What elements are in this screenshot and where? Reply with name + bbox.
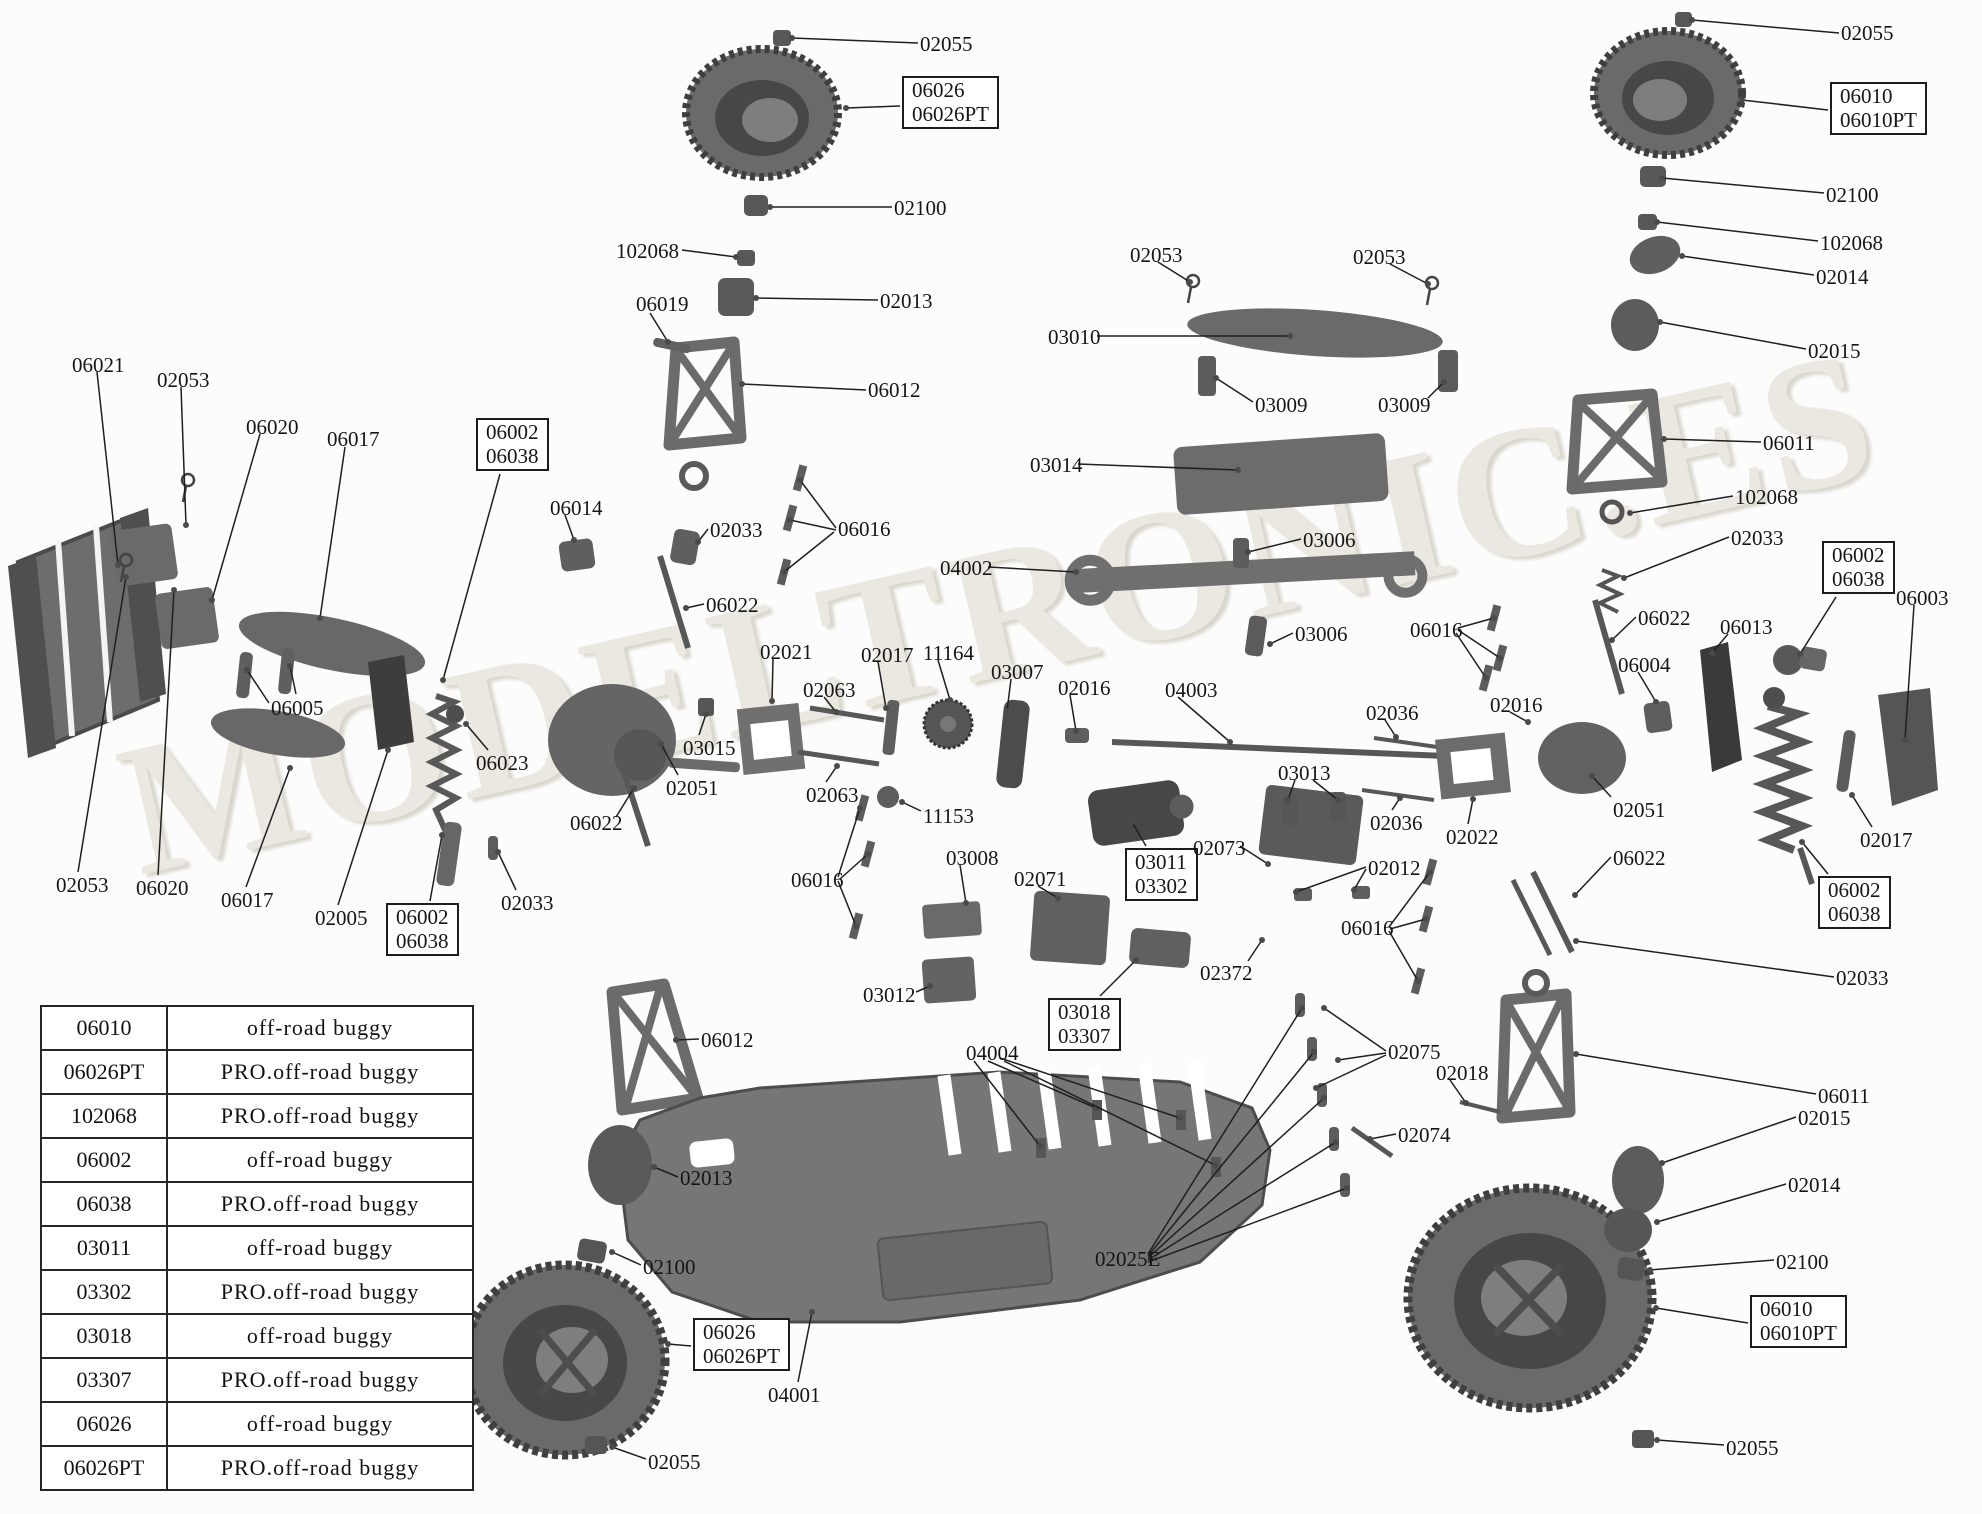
leader-tip	[947, 697, 953, 703]
leader-tip	[1654, 1437, 1660, 1443]
electronics	[922, 777, 1370, 1004]
leader-line	[1656, 1308, 1748, 1323]
leader-tip	[1463, 1100, 1469, 1106]
table-row: 03011off-road buggy	[41, 1226, 473, 1270]
leader-tip	[1647, 1267, 1653, 1273]
leader-line	[612, 1447, 646, 1459]
leader-tip	[495, 849, 501, 855]
leader-line	[1657, 222, 1818, 241]
leader-tip	[1313, 1085, 1319, 1091]
leader-tip	[833, 709, 839, 715]
leader-tip	[1653, 1305, 1659, 1311]
leader-tip	[1679, 253, 1685, 259]
leader-tip	[1573, 938, 1579, 944]
shock-tower-front-right	[1572, 394, 1662, 489]
leader-tip	[1573, 1051, 1579, 1057]
leader-line	[1248, 539, 1301, 552]
part-desc-cell: off-road buggy	[167, 1226, 473, 1270]
wheel-front-left	[686, 49, 838, 177]
leader-tip	[665, 339, 671, 345]
leader-tip	[1321, 1095, 1327, 1101]
table-row: 06038PRO.off-road buggy	[41, 1182, 473, 1226]
leader-tip	[834, 763, 840, 769]
leader-tip	[1659, 175, 1665, 181]
leader-line	[1852, 795, 1872, 827]
leader-line	[1575, 857, 1611, 895]
leader-line	[1624, 537, 1729, 578]
leader-line	[466, 724, 488, 750]
leader-tip	[1654, 1219, 1660, 1225]
leader-line	[1370, 1134, 1396, 1139]
leader-tip	[1267, 641, 1273, 647]
leader-line	[1178, 697, 1230, 742]
leader-tip	[899, 799, 905, 805]
leader-tip	[571, 537, 577, 543]
leader-line	[1650, 1260, 1774, 1270]
leader-tip	[865, 851, 871, 857]
drivetrain-right	[1362, 12, 1938, 994]
leader-tip	[857, 805, 863, 811]
leader-line	[1662, 178, 1824, 193]
parts-table-grid: 06010off-road buggy06026PTPRO.off-road b…	[40, 1005, 474, 1491]
leader-tip	[631, 785, 637, 791]
part-number-cell: 03307	[41, 1358, 167, 1402]
leader-line	[1576, 1054, 1816, 1094]
leader-tip	[1572, 892, 1578, 898]
leader-tip	[1799, 839, 1805, 845]
leader-tip	[853, 923, 859, 929]
leader-tip	[1659, 1160, 1665, 1166]
leader-tip	[1245, 549, 1251, 555]
leader-tip	[1073, 569, 1079, 575]
exploded-parts-diagram: MODELTRONIC.ES	[0, 0, 1982, 1514]
leader-line	[742, 384, 866, 390]
leader-tip	[1397, 795, 1403, 801]
leader-line	[498, 852, 516, 890]
leader-line	[1742, 100, 1828, 110]
leader-line	[1456, 633, 1486, 678]
leader-tip	[843, 105, 849, 111]
leader-tip	[927, 983, 933, 989]
leader-line	[1612, 617, 1636, 640]
leader-line	[1682, 256, 1814, 275]
leader-tip	[733, 254, 739, 260]
leader-tip	[439, 832, 445, 838]
leader-line	[650, 313, 668, 342]
leader-tip	[1285, 797, 1291, 803]
part-desc-cell: PRO.off-road buggy	[167, 1270, 473, 1314]
leader-tip	[1037, 1143, 1043, 1149]
leader-tip	[1335, 1057, 1341, 1063]
leader-tip	[1427, 869, 1433, 875]
part-number-cell: 03018	[41, 1314, 167, 1358]
center-assembly	[1069, 301, 1458, 657]
leader-tip	[1177, 1115, 1183, 1121]
table-row: 03018off-road buggy	[41, 1314, 473, 1358]
leader-tip	[1335, 797, 1341, 803]
leader-tip	[703, 711, 709, 717]
leader-tip	[1293, 889, 1299, 895]
leader-line	[212, 434, 260, 600]
leader-tip	[1849, 792, 1855, 798]
leader-line	[676, 1039, 699, 1040]
part-number-cell: 06026PT	[41, 1446, 167, 1490]
leader-tip	[1657, 319, 1663, 325]
part-desc-cell: PRO.off-road buggy	[167, 1094, 473, 1138]
part-desc-cell: PRO.off-road buggy	[167, 1358, 473, 1402]
leader-tip	[1299, 1005, 1305, 1011]
leader-line	[1692, 20, 1839, 33]
leader-line	[1390, 264, 1428, 284]
part-number-cell: 06038	[41, 1182, 167, 1226]
leader-tip	[244, 667, 250, 673]
leader-line	[1450, 1080, 1466, 1103]
leader-line	[1662, 1117, 1796, 1163]
part-desc-cell: PRO.off-road buggy	[167, 1446, 473, 1490]
part-desc-cell: off-road buggy	[167, 1402, 473, 1446]
table-row: 06026PTPRO.off-road buggy	[41, 1050, 473, 1094]
table-row: 06026PTPRO.off-road buggy	[41, 1446, 473, 1490]
leader-tip	[1055, 895, 1061, 901]
leader-line	[792, 38, 918, 43]
leader-tip	[883, 705, 889, 711]
leader-line	[1664, 439, 1761, 442]
leader-line	[902, 802, 921, 811]
leader-tip	[1187, 279, 1193, 285]
leader-line	[320, 447, 345, 618]
shock-tower-rear-left	[612, 984, 698, 1110]
leader-tip	[1213, 375, 1219, 381]
leader-line	[1800, 597, 1836, 654]
leader-line	[1660, 322, 1806, 349]
leader-line	[247, 670, 269, 703]
leader-line	[800, 480, 836, 528]
parts-table: 06010off-road buggy06026PTPRO.off-road b…	[40, 1005, 474, 1491]
leader-tip	[1425, 281, 1431, 287]
leader-line	[1630, 496, 1733, 513]
leader-line	[612, 1252, 641, 1265]
leader-line	[790, 520, 836, 530]
gearbox-front-left	[548, 464, 805, 796]
leader-line	[682, 250, 736, 257]
leader-tip	[1415, 978, 1421, 984]
leader-line	[784, 532, 834, 572]
shock-absorber-left	[432, 696, 464, 887]
leader-tip	[809, 1309, 815, 1315]
leader-tip	[963, 900, 969, 906]
leader-line	[1248, 940, 1262, 961]
leader-line	[838, 881, 856, 926]
leader-tip	[1287, 333, 1293, 339]
leader-tip	[183, 522, 189, 528]
leader-line	[1316, 1055, 1386, 1088]
leader-tip	[1235, 467, 1241, 473]
leader-tip	[658, 741, 664, 747]
leader-tip	[1797, 651, 1803, 657]
leader-line	[181, 387, 186, 525]
leader-line	[838, 808, 860, 877]
leader-tip	[317, 615, 323, 621]
leader-tip	[695, 539, 701, 545]
leader-tip	[665, 1341, 671, 1347]
part-number-cell: 06026PT	[41, 1050, 167, 1094]
leader-tip	[463, 721, 469, 727]
leader-tip	[797, 477, 803, 483]
leader-line	[1510, 712, 1528, 722]
leader-tip	[1344, 1185, 1350, 1191]
leader-tip	[385, 747, 391, 753]
leader-tip	[1739, 97, 1745, 103]
leader-tip	[1133, 957, 1139, 963]
leader-tip	[1491, 615, 1497, 621]
leader-line	[1158, 262, 1190, 282]
part-number-cell: 06002	[41, 1138, 167, 1182]
leader-tip	[767, 204, 773, 210]
leader-line	[878, 662, 886, 708]
leader-line	[1576, 941, 1834, 977]
leader-tip	[1709, 650, 1715, 656]
leader-tip	[115, 562, 121, 568]
leader-tip	[609, 1249, 615, 1255]
leader-line	[668, 1344, 691, 1346]
leader-tip	[1073, 728, 1079, 734]
leader-tip	[1441, 379, 1447, 385]
leader-tip	[1367, 1136, 1373, 1142]
leader-tip	[1470, 796, 1476, 802]
leader-line	[988, 567, 1076, 572]
leader-tip	[1423, 916, 1429, 922]
part-desc-cell: off-road buggy	[167, 1314, 473, 1358]
leader-tip	[1621, 575, 1627, 581]
leader-line	[1385, 720, 1396, 737]
leader-tip	[1004, 708, 1010, 714]
leader-tip	[171, 587, 177, 593]
leader-tip	[739, 381, 745, 387]
leader-tip	[651, 1164, 657, 1170]
leader-tip	[440, 677, 446, 683]
wheel-rear-left	[465, 1265, 665, 1455]
leader-tip	[1259, 937, 1265, 943]
leader-tip	[1589, 773, 1595, 779]
leader-tip	[1311, 1049, 1317, 1055]
leader-line	[443, 474, 500, 680]
leader-tip	[1265, 861, 1271, 867]
leader-tip	[1627, 510, 1633, 516]
leader-line	[1468, 799, 1473, 824]
part-desc-cell: PRO.off-road buggy	[167, 1182, 473, 1226]
chassis-plate	[618, 1060, 1270, 1322]
leader-line	[772, 659, 773, 701]
leader-line	[846, 106, 900, 108]
leader-tip	[1321, 1005, 1327, 1011]
leader-tip	[609, 1444, 615, 1450]
leader-tip	[789, 35, 795, 41]
leader-line	[1270, 633, 1293, 644]
leader-tip	[1689, 17, 1695, 23]
leader-tip	[123, 574, 129, 580]
part-number-cell: 06010	[41, 1006, 167, 1050]
table-row: 06010off-road buggy	[41, 1006, 473, 1050]
leader-tip	[209, 597, 215, 603]
leader-tip	[287, 663, 293, 669]
part-number-cell: 06026	[41, 1402, 167, 1446]
leader-line	[1389, 931, 1418, 981]
leader-tip	[769, 698, 775, 704]
table-row: 102068PRO.off-road buggy	[41, 1094, 473, 1138]
leader-tip	[1525, 719, 1531, 725]
table-row: 06026off-road buggy	[41, 1402, 473, 1446]
leader-tip	[1653, 699, 1659, 705]
leader-line	[756, 298, 878, 300]
leader-tip	[1654, 219, 1660, 225]
part-number-cell: 102068	[41, 1094, 167, 1138]
leader-tip	[781, 569, 787, 575]
leader-tip	[683, 605, 689, 611]
leader-tip	[787, 517, 793, 523]
leader-tip	[1609, 637, 1615, 643]
leader-line	[1100, 960, 1136, 996]
leader-tip	[1129, 819, 1135, 825]
leader-line	[699, 714, 706, 735]
leader-tip	[1497, 655, 1503, 661]
leader-line	[1638, 672, 1656, 702]
leader-tip	[1661, 436, 1667, 442]
shock-tower-front-left	[669, 342, 741, 445]
shock-absorber-right	[1763, 687, 1812, 884]
table-row: 03302PRO.off-road buggy	[41, 1270, 473, 1314]
leader-line	[1324, 1008, 1386, 1051]
leader-tip	[1212, 1162, 1218, 1168]
leader-tip	[753, 295, 759, 301]
leader-line	[565, 515, 574, 540]
part-desc-cell: off-road buggy	[167, 1006, 473, 1050]
leader-tip	[287, 765, 293, 771]
leader-line	[1657, 1184, 1786, 1222]
leader-line	[1458, 630, 1500, 658]
leader-line	[338, 750, 388, 905]
leader-line	[1070, 695, 1076, 731]
part-desc-cell: off-road buggy	[167, 1138, 473, 1182]
leader-tip	[673, 1037, 679, 1043]
leader-tip	[1227, 739, 1233, 745]
leader-tip	[1393, 734, 1399, 740]
part-desc-cell: PRO.off-road buggy	[167, 1050, 473, 1094]
leader-tip	[1902, 737, 1908, 743]
part-number-cell: 03011	[41, 1226, 167, 1270]
leader-line	[246, 768, 290, 887]
leader-line	[960, 865, 966, 903]
shock-tower-rear-right	[1502, 994, 1570, 1118]
leader-tip	[1333, 1139, 1339, 1145]
leader-tip	[1351, 887, 1357, 893]
wheel-front-right	[1594, 31, 1742, 155]
part-number-cell: 03302	[41, 1270, 167, 1314]
table-row: 06002off-road buggy	[41, 1138, 473, 1182]
leader-line	[1657, 1440, 1724, 1445]
leader-line	[1216, 378, 1253, 402]
leader-tip	[1483, 675, 1489, 681]
table-row: 03307PRO.off-road buggy	[41, 1358, 473, 1402]
leader-line	[938, 660, 950, 700]
